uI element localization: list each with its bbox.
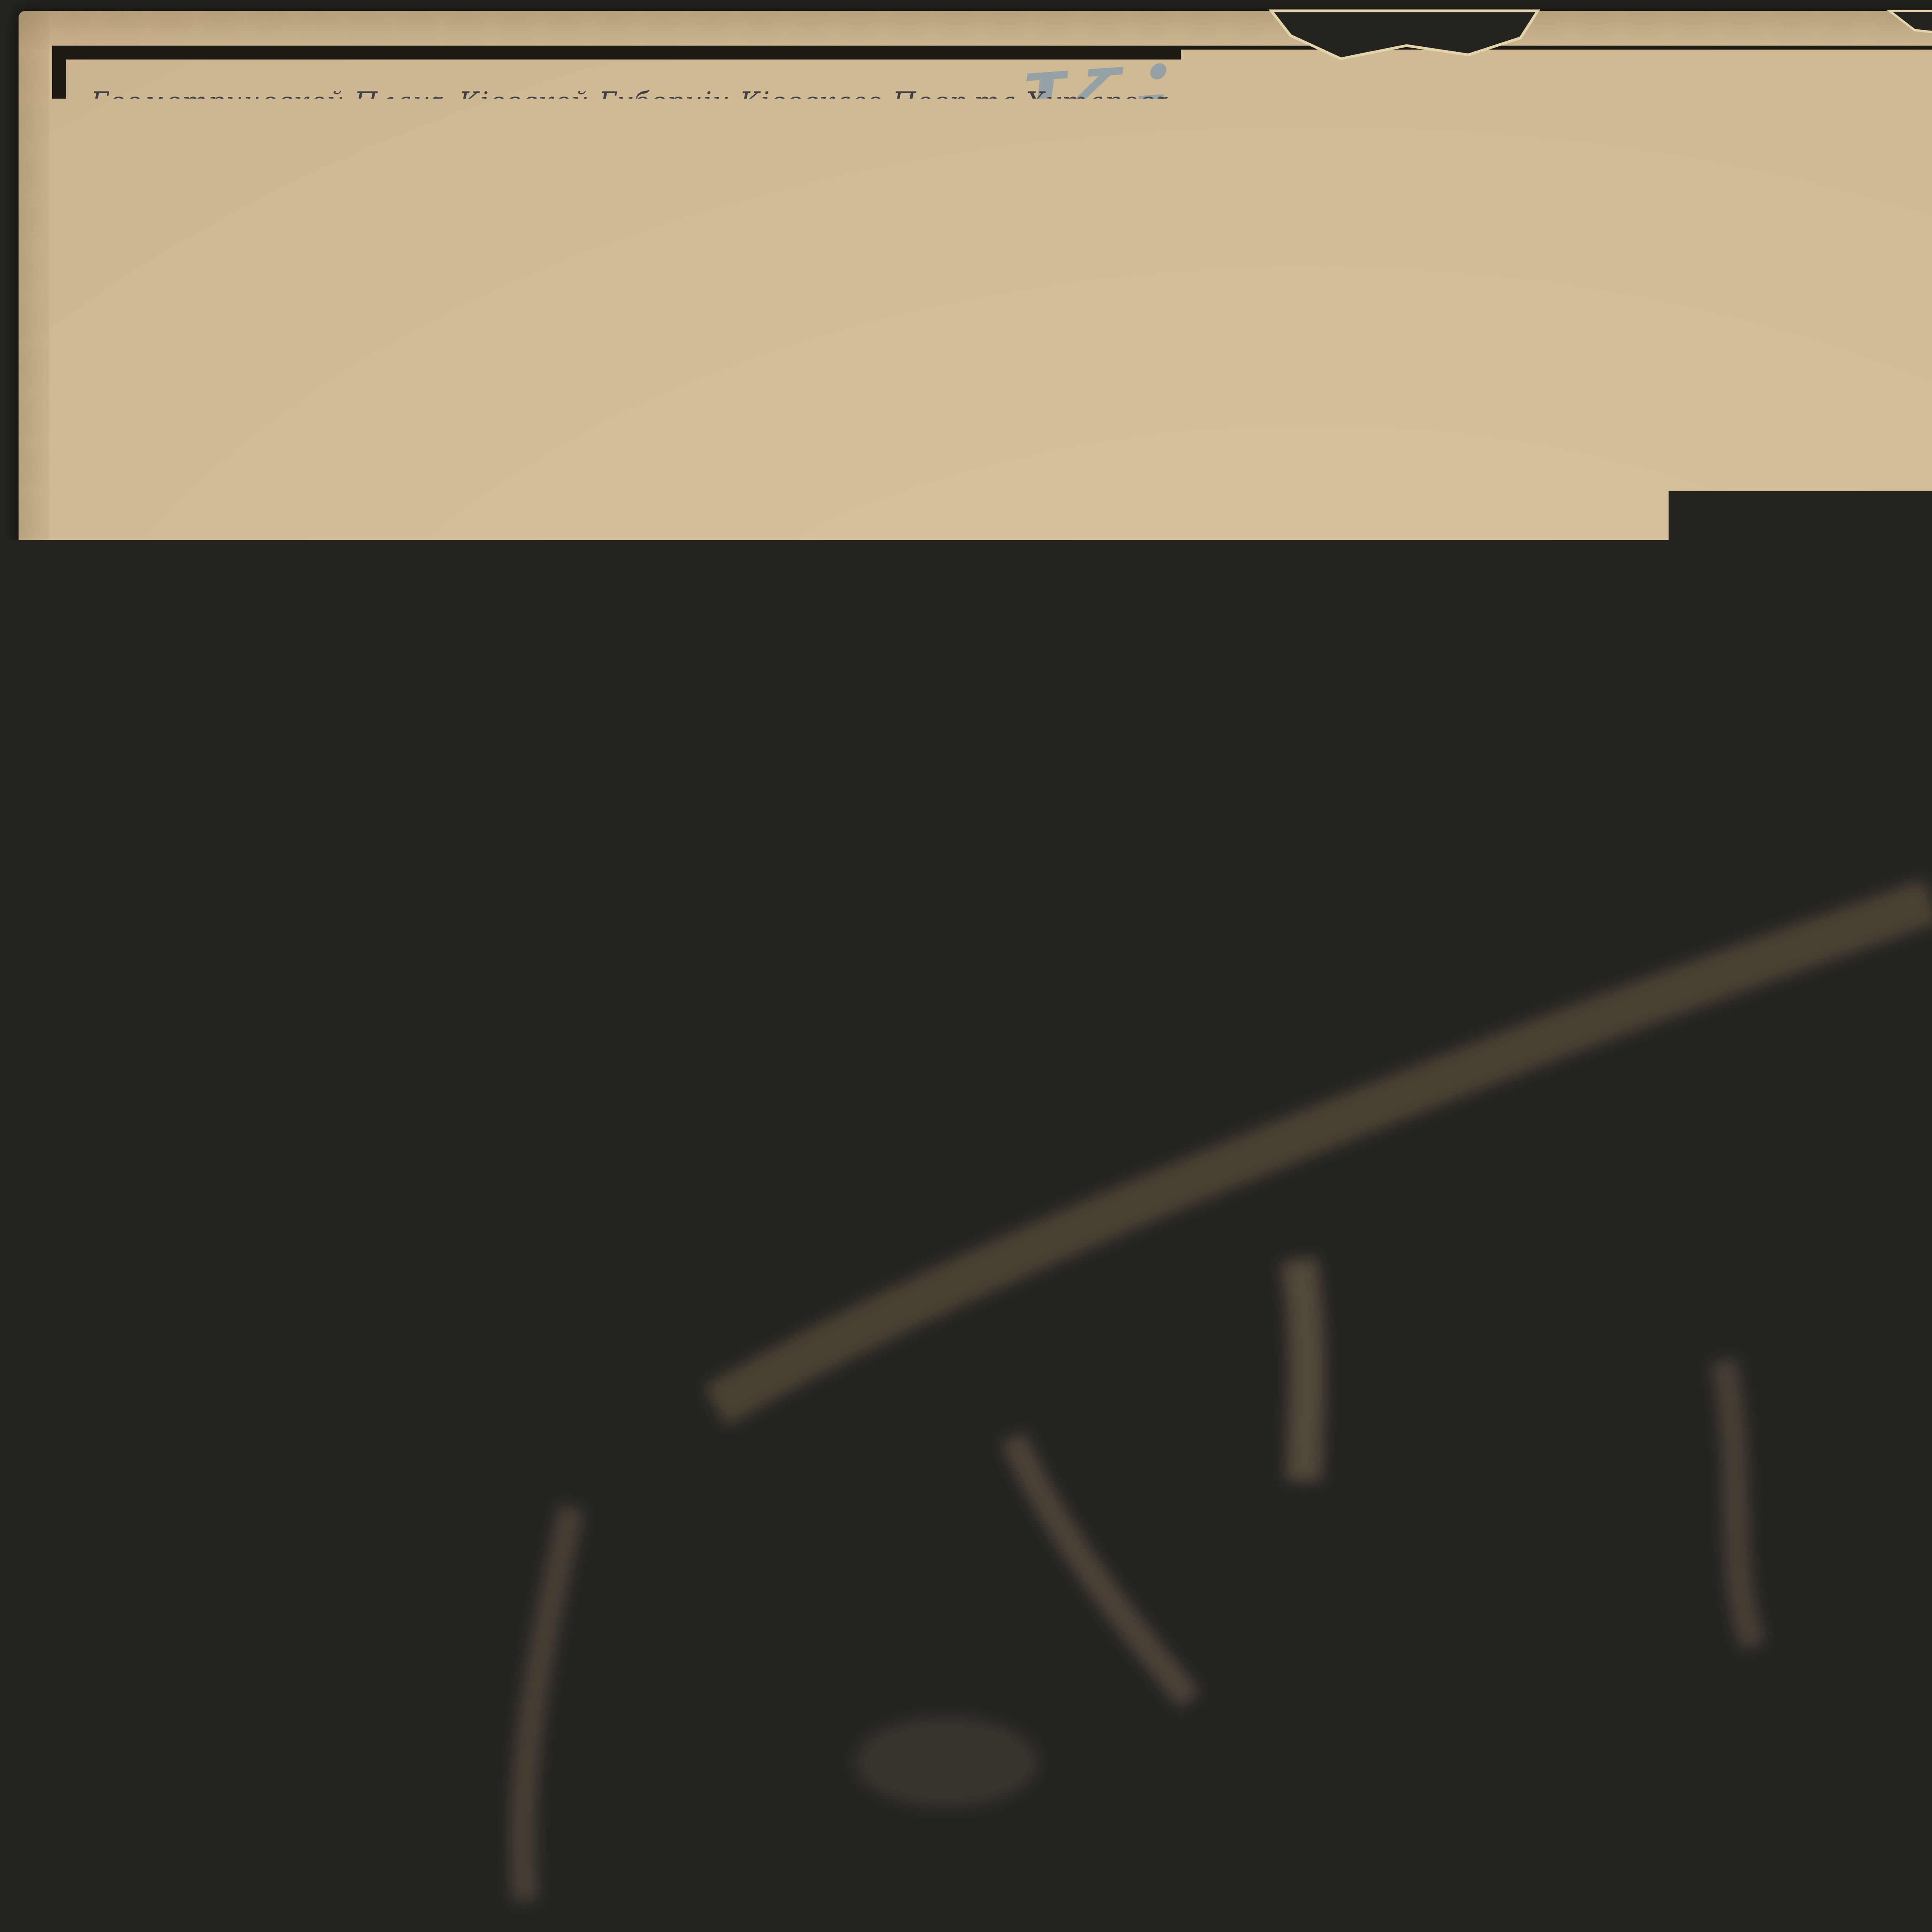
- paper-tears: [0, 0, 1932, 1932]
- map-sheet: Кіева Геометрической Планъ Кіевской Губе…: [0, 0, 1932, 1932]
